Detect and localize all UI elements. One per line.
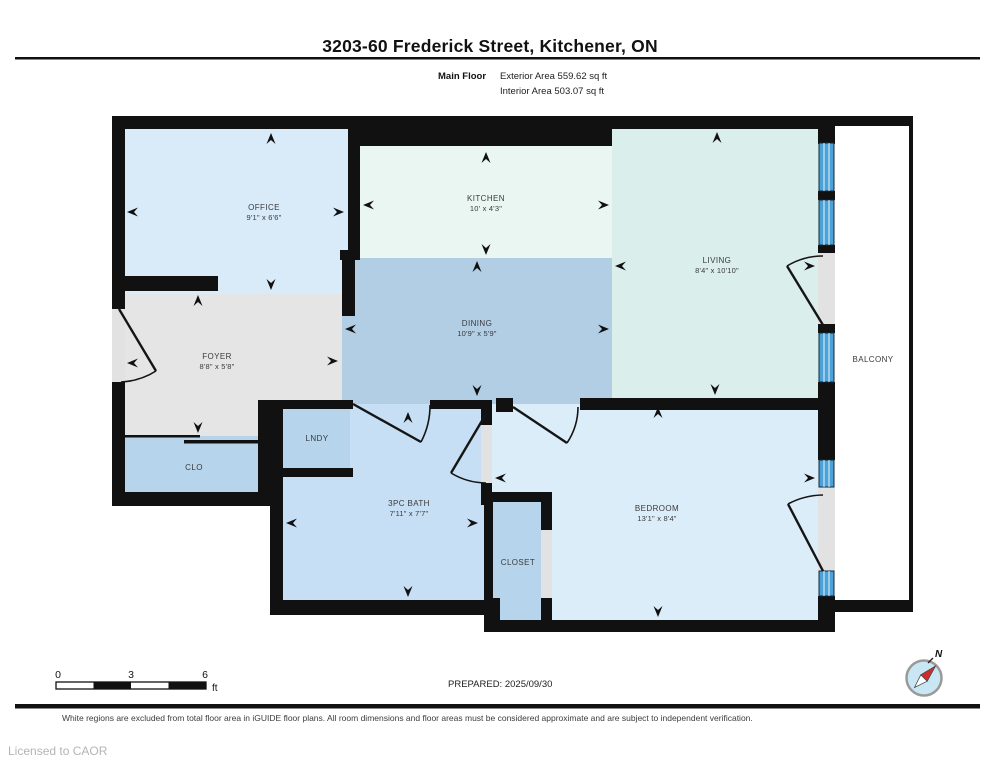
window-icon [819,571,834,596]
dining-label: DINING [462,319,492,328]
scale-mid: 3 [128,669,134,681]
footer-divider [15,704,980,709]
living-label: LIVING [703,256,732,265]
compass-north-label: N [935,649,943,660]
license-text: Licensed to CAOR [8,744,108,758]
compass-icon: N [907,649,944,696]
bedroom-balcony-door-opening [818,487,835,571]
header-divider [15,57,980,60]
closet-label: CLOSET [501,558,535,567]
scale-start: 0 [55,669,61,681]
office-floor [118,124,354,294]
bath-dims: 7'11" x 7'7" [390,509,429,518]
clo-door-panel [184,440,258,444]
dining-dims: 10'9" x 5'9" [457,329,496,338]
entry-door-opening [112,309,125,382]
kitchen-label: KITCHEN [467,194,505,203]
prepared-date: PREPARED: 2025/09/30 [448,679,552,690]
living-balcony-door-opening [818,253,835,324]
page-title: 3203-60 Frederick Street, Kitchener, ON [322,36,658,56]
scale-bar: 0 3 6 ft [55,669,218,694]
lndy-label: LNDY [306,434,329,443]
foyer-dims: 8'8" x 5'8" [200,362,235,371]
bath-label: 3PC BATH [388,499,430,508]
bath-door-opening [481,425,492,483]
window-icon [819,143,834,191]
exterior-area: Exterior Area 559.62 sq ft [500,71,608,82]
office-dims: 9'1" x 6'6" [247,213,282,222]
window-icon [819,333,834,382]
closet-door-opening [541,530,552,598]
balcony-label: BALCONY [852,355,893,364]
window-icon [819,200,834,245]
living-dims: 8'4" x 10'10" [695,266,739,275]
disclaimer-text: White regions are excluded from total fl… [62,713,753,723]
floor-plan-page: 3203-60 Frederick Street, Kitchener, ON … [0,0,995,768]
floor-label: Main Floor [438,71,486,82]
scale-unit: ft [212,683,218,694]
foyer-label: FOYER [202,352,232,361]
office-label: OFFICE [248,203,280,212]
clo-door-track [118,435,200,438]
window-icon [819,460,834,487]
bedroom-label: BEDROOM [635,504,679,513]
scale-end: 6 [202,669,208,681]
kitchen-dims: 10' x 4'3" [470,204,502,213]
clo-label: CLO [185,463,203,472]
interior-area: Interior Area 503.07 sq ft [500,86,604,97]
bedroom-dims: 13'1" x 8'4" [637,514,676,523]
